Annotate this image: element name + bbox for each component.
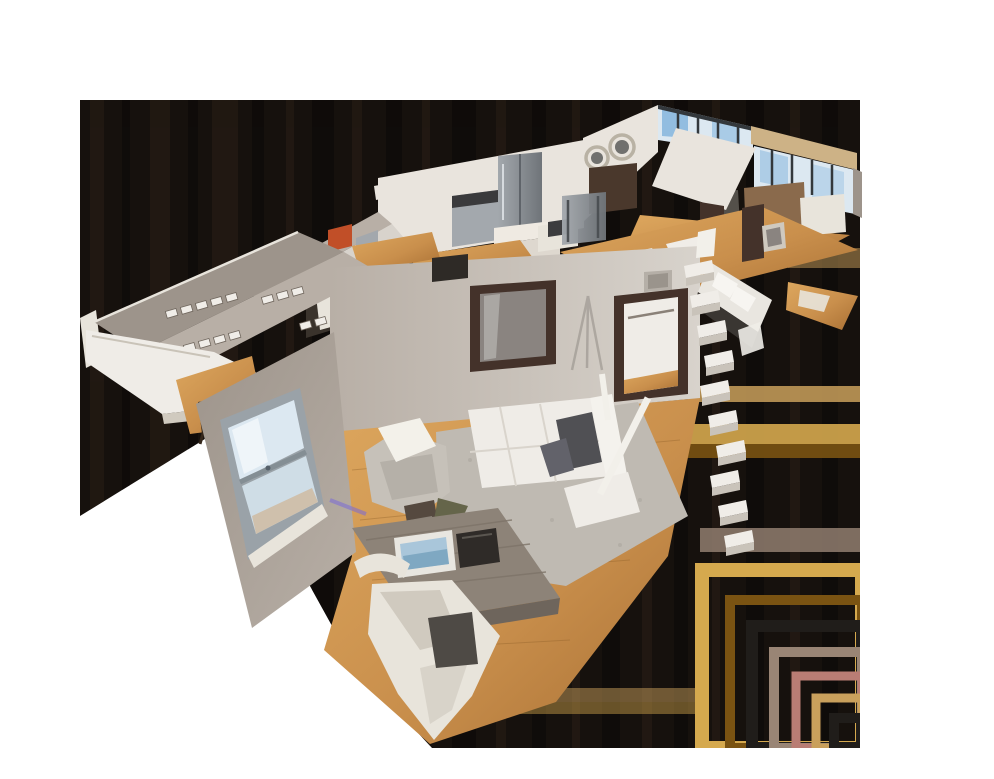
towel: [696, 228, 716, 258]
chair-dark-core: [428, 612, 478, 668]
right-end-wall: [853, 168, 862, 218]
hall-dark-door: [742, 204, 764, 262]
wall-vent: [644, 270, 672, 292]
stove: [452, 190, 498, 247]
mirrored-door: [470, 280, 556, 372]
fridge: [498, 152, 542, 234]
viewer-canvas[interactable]: [0, 0, 994, 779]
dollhouse-3d-view: [0, 0, 994, 779]
closet-doorway: [614, 288, 688, 402]
transom-opening: [432, 254, 468, 282]
dark-bag: [456, 528, 500, 568]
steel-console: [562, 192, 606, 245]
framed-print: [762, 222, 786, 252]
